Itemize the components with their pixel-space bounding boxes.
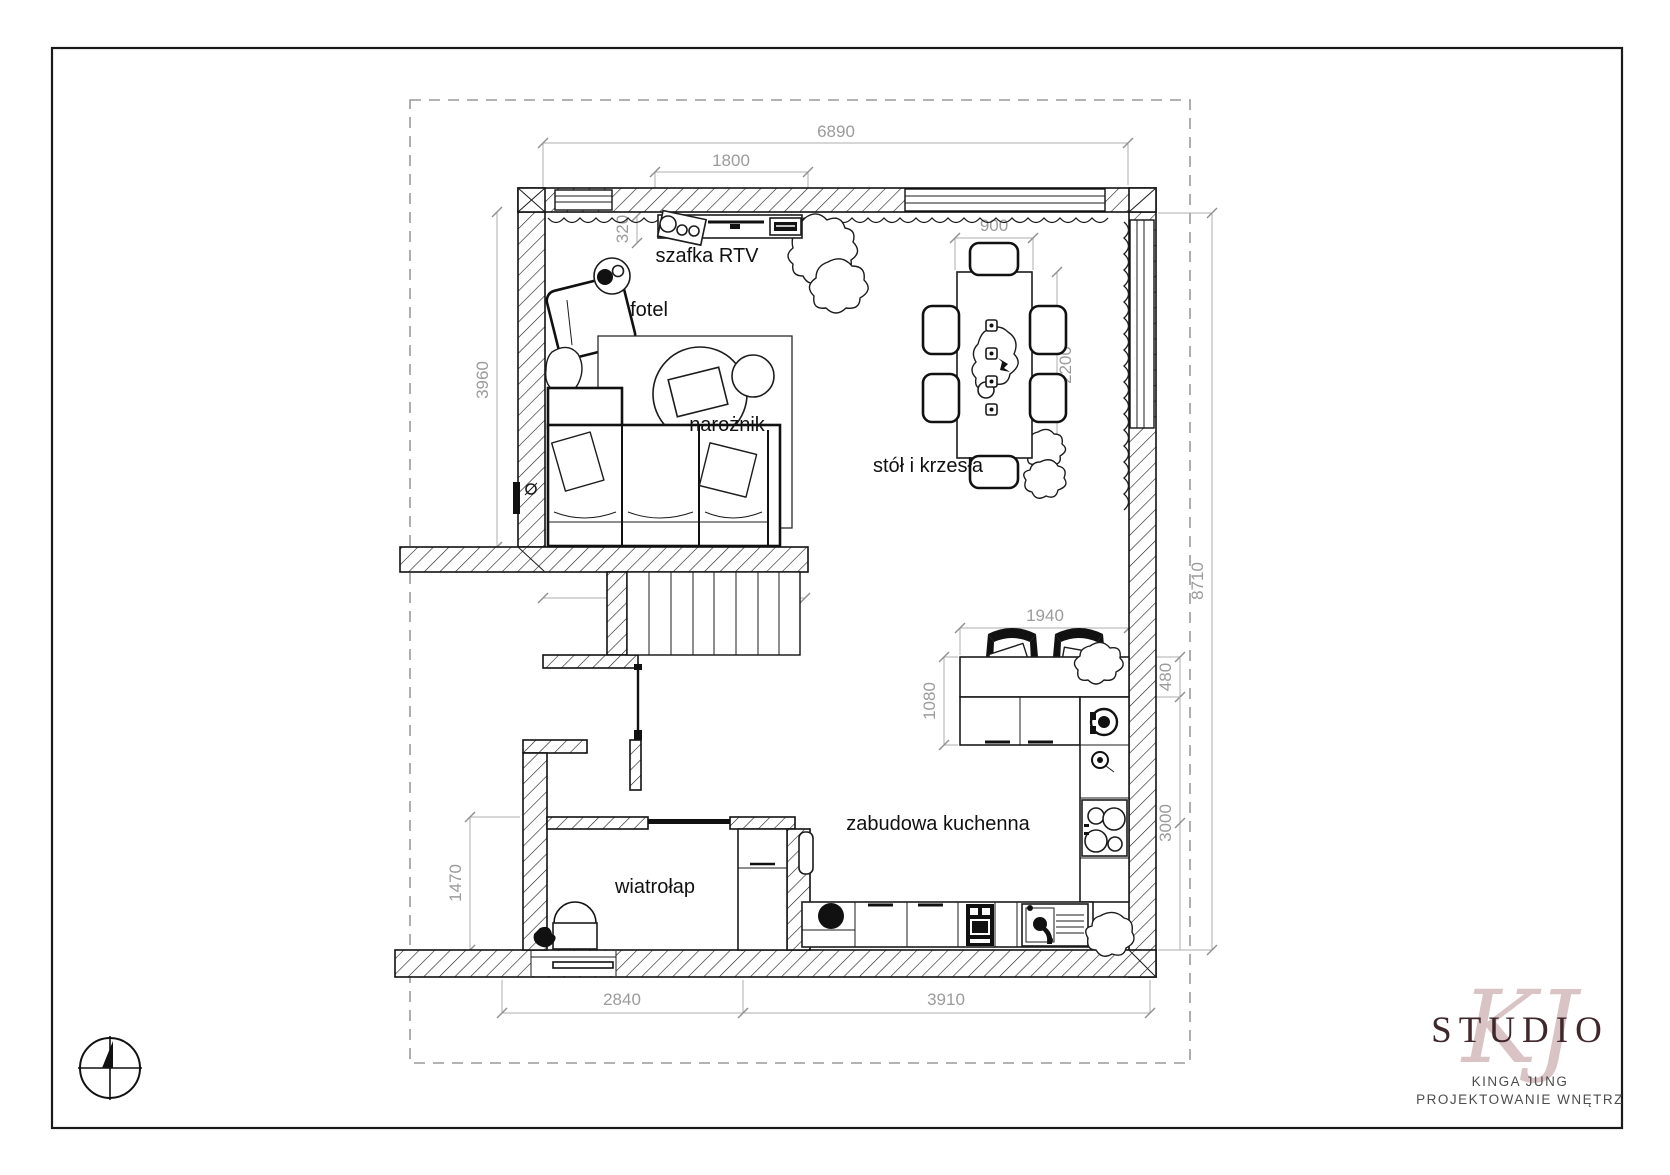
studio-logo: KJ STUDIO KINGA JUNG PROJEKTOWANIE WNĘTR… xyxy=(1416,969,1624,1107)
rtv-cabinet xyxy=(658,211,802,246)
dim-right-total: 8710 xyxy=(1188,562,1207,600)
dim-kitchen-height: 3000 xyxy=(1156,804,1175,842)
window-top-left xyxy=(555,190,612,210)
wardrobe xyxy=(738,829,787,950)
dim-table-width: 900 xyxy=(980,216,1008,235)
floor-lamp-icon xyxy=(594,258,630,294)
label-dining-set: stół i krzesła xyxy=(873,455,984,477)
kitchen-right-counter xyxy=(1080,697,1129,902)
dining-chair xyxy=(923,374,959,422)
compass-icon xyxy=(78,1036,142,1100)
dining-chair xyxy=(1030,306,1066,354)
dim-bottom-right: 3910 xyxy=(927,990,965,1009)
label-armchair: fotel xyxy=(630,299,668,321)
oven-icon xyxy=(966,904,994,946)
radiator xyxy=(799,832,813,874)
cooktop-icon xyxy=(1082,800,1127,856)
curtain-right xyxy=(1124,222,1129,510)
dim-top-total: 6890 xyxy=(817,122,855,141)
label-corner-sofa: narożnik xyxy=(689,414,766,436)
window-right-wall xyxy=(1130,220,1154,428)
logo-studio-text: STUDIO xyxy=(1431,1010,1609,1051)
dining-chair xyxy=(923,306,959,354)
dining-chair xyxy=(1030,374,1066,422)
window-top-right xyxy=(905,189,1105,211)
floor-plan-sheet: 6890 1800 320 900 2200 3960 3050 8710 xyxy=(0,0,1670,1175)
dim-rtv-width: 1800 xyxy=(712,151,750,170)
kitchen-bottom-counter xyxy=(802,902,1134,956)
interior-door xyxy=(634,664,642,740)
staircase xyxy=(627,572,800,655)
vestibule-sliding-door xyxy=(648,819,730,824)
dim-peninsula-width: 1940 xyxy=(1026,606,1064,625)
sink-icon xyxy=(1022,904,1088,946)
dim-living-height: 3960 xyxy=(473,361,492,399)
logo-tagline: PROJEKTOWANIE WNĘTRZ xyxy=(1416,1092,1624,1107)
label-kitchen: zabudowa kuchenna xyxy=(846,813,1030,835)
round-basin-icon xyxy=(818,903,844,929)
floor-plan-drawing: 6890 1800 320 900 2200 3960 3050 8710 xyxy=(0,0,1670,1175)
label-vestibule: wiatrołap xyxy=(614,876,695,898)
dim-counter-depth: 480 xyxy=(1156,663,1175,691)
dim-vestibule-height: 1470 xyxy=(446,864,465,902)
label-rtv-cabinet: szafka RTV xyxy=(656,245,760,267)
logo-author: KINGA JUNG xyxy=(1472,1074,1569,1089)
dining-chair xyxy=(970,243,1018,275)
dim-bottom-left: 2840 xyxy=(603,990,641,1009)
dim-peninsula-depth: 1080 xyxy=(920,682,939,720)
entrance-door xyxy=(531,951,616,976)
